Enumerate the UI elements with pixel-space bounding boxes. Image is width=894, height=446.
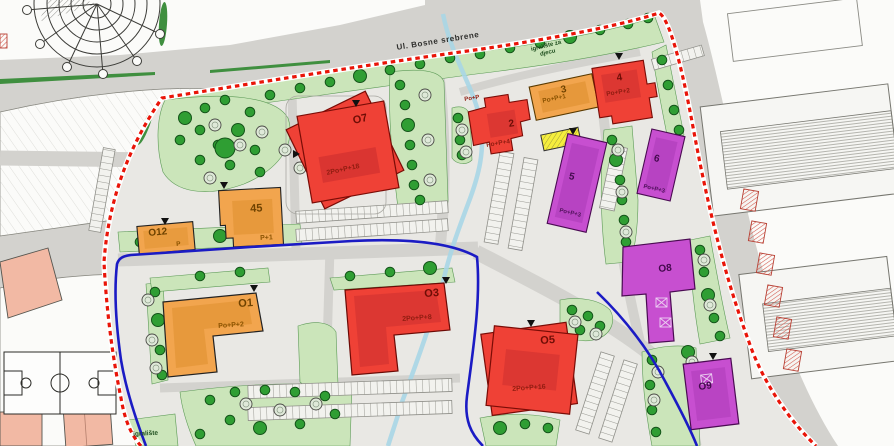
- site-plan-map[interactable]: Ul. Bosne srebrene igralište za djecu ig…: [0, 0, 894, 446]
- building-o5: [481, 322, 578, 415]
- building-o12: [137, 222, 195, 255]
- building-45: [219, 187, 284, 247]
- site-plan-canvas: [0, 0, 894, 446]
- basketball-court: [4, 352, 116, 414]
- building-o9: [683, 358, 739, 429]
